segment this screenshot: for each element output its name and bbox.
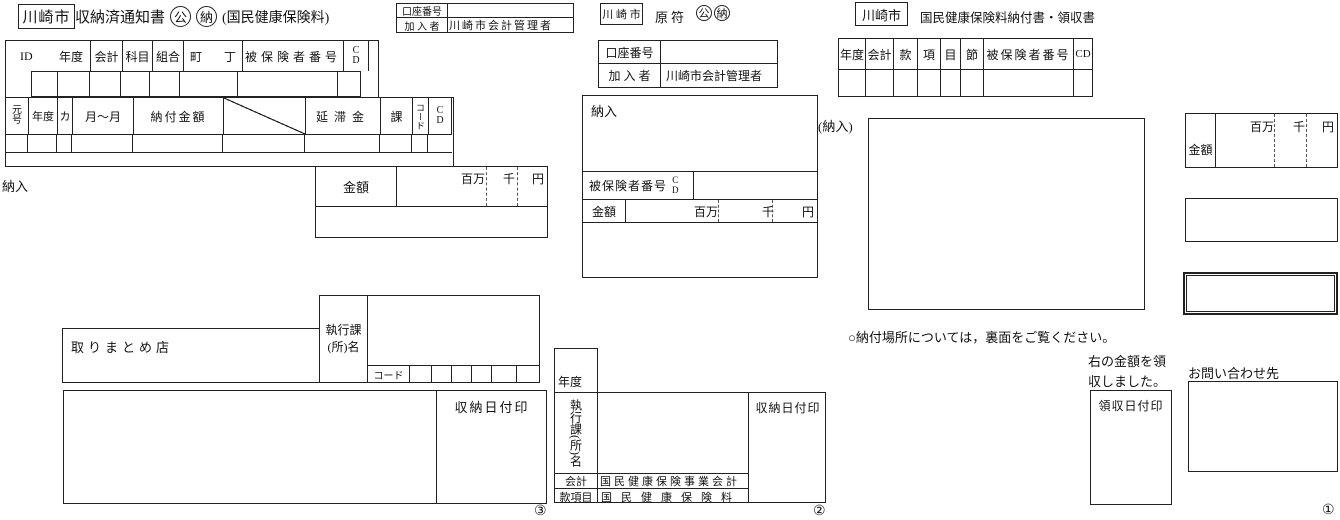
blank-cell — [120, 71, 150, 97]
form2-insured-cd: C D — [672, 176, 679, 195]
form1-part-number: ① — [1322, 502, 1335, 519]
form1-receipt-stamp-box: 領収日付印 — [1090, 390, 1172, 505]
form2-account-table: 口座番号 加 入 者 川崎市会計管理者 — [598, 40, 778, 88]
blank-cell — [472, 366, 492, 382]
blank-cell — [149, 71, 180, 97]
form1-unit-thousand: 千 — [1293, 118, 1305, 135]
blank-cell — [28, 135, 57, 152]
form1-received-note: 右の金額を領収しました。 — [1088, 352, 1172, 392]
form1-amount-label: 金額 — [1186, 114, 1216, 167]
form3-amount-box: 金額 百万 千 円 — [315, 166, 548, 238]
form2-insured-cell: 被保険者番号 C D — [583, 172, 694, 199]
blank-cell — [961, 70, 984, 96]
form2-nou-circle-mark: 納 — [714, 5, 730, 21]
form3-nounyuu-label: 納入 — [2, 176, 28, 195]
form2-kou-circle-mark: 公 — [696, 5, 712, 21]
form3-amount-label: 金額 — [316, 167, 397, 206]
form3-col-code: コード — [413, 98, 429, 134]
form2-main-box: 納入 被保険者番号 C D 金額 百万 千 円 — [582, 95, 818, 278]
form3-col-tsuki: 月〜月 — [73, 98, 134, 134]
form3-unit-million: 百万 — [461, 170, 485, 187]
form2-kankomoku-label: 款項目 — [555, 489, 597, 504]
form3-code-row: コード — [367, 365, 540, 383]
blank-cell — [492, 366, 517, 382]
form1-double-border-box — [1183, 272, 1338, 315]
form3-city-box: 川崎市 — [18, 4, 75, 29]
form3-subscriber-value: 川崎市会計管理者 — [448, 18, 573, 32]
blank-cell — [179, 71, 238, 97]
form2-nendo-label: 年度 — [558, 373, 582, 390]
form3-col-filler — [369, 41, 378, 71]
form2-amount-dash-2 — [772, 200, 773, 222]
form2-account-number-label: 口座番号 — [599, 41, 661, 63]
form3-col-filler2 — [452, 98, 453, 134]
form2-unit-yen: 円 — [802, 203, 814, 220]
form1-col-moku: 目 — [941, 39, 961, 69]
form1-amount-units: 百万 千 円 — [1216, 114, 1337, 167]
form2-account-number-value — [661, 41, 777, 63]
form1-city-box: 川崎市 — [855, 2, 908, 26]
form3-col-gengo: 元 号 — [6, 98, 29, 134]
form3-col-ka: カ — [58, 98, 73, 134]
form2-city-box: 川 崎 市 — [600, 3, 643, 25]
form3-torimatome-label: 取りまとめ店 — [63, 329, 319, 356]
blank-cell — [412, 135, 428, 152]
form3-col-chome: 丁 — [224, 48, 236, 65]
form3-col-cho: 町 — [190, 48, 202, 65]
form3-cd2-d: D — [436, 116, 443, 127]
form2-unit-million: 百万 — [694, 203, 718, 220]
form1-header-table: 年度 会計 款 項 目 節 被保険者番号 CD — [838, 38, 1093, 97]
form3-payment-table: 元 号 年度 カ 月〜月 納付金額 延滞金 課 コード C D — [5, 97, 454, 167]
form2-city: 川 崎 市 — [602, 6, 641, 22]
form3-subtitle: (国民健康保険料) — [222, 7, 329, 27]
form3-col-nendo2: 年度 — [29, 98, 58, 134]
blank-cell — [337, 71, 361, 97]
form3-part-number: ③ — [534, 503, 547, 520]
form3-col-entai: 延滞金 — [306, 98, 381, 134]
blank-cell — [72, 135, 133, 152]
blank-cell — [428, 135, 452, 152]
form2-shikkou-cell: 執行課(所)名 — [555, 393, 597, 473]
form3-account-number-value — [448, 4, 573, 17]
form1-receipt-stamp-label: 領収日付印 — [1091, 391, 1171, 414]
scanned-form-sheet: 川崎市 収納済通知書 公 納 (国民健康保険料) 口座番号 加 入 者 川崎市会… — [0, 0, 1340, 520]
blank-cell — [452, 366, 472, 382]
form3-col-kamoku: 科目 — [123, 41, 153, 71]
form1-col-hihokensha: 被保険者番号 — [984, 39, 1074, 69]
form1-title: 国民健康保険料納付書・領収書 — [920, 7, 1095, 26]
form3-stamp-box: 収納日付印 — [63, 390, 547, 504]
form2-nounyuu-label: 納入 — [591, 101, 617, 120]
blank-cell — [517, 366, 539, 382]
form1-city: 川崎市 — [862, 5, 901, 24]
form3-col-id: ID — [20, 49, 33, 64]
form3-unit-thousand: 千 — [503, 170, 515, 187]
form3-col-kacol: 課 — [381, 98, 413, 134]
form2-cd-d: D — [672, 186, 679, 195]
form3-cd-d: D — [352, 56, 359, 67]
form3-stamp-label: 収納日付印 — [437, 397, 547, 416]
form1-col-kaikei: 会計 — [866, 39, 894, 69]
form1-payment-place-note: ○納付場所については，裏面をご覧ください。 — [848, 327, 1115, 346]
blank-cell — [31, 71, 58, 97]
blank-cell — [866, 70, 894, 96]
form3-col-noufu: 納付金額 — [134, 98, 224, 134]
form1-amount-box: 金額 百万 千 円 — [1185, 113, 1338, 168]
blank-cell — [432, 366, 452, 382]
form2-subscriber-value: 川崎市会計管理者 — [661, 64, 777, 87]
form2-insured-value — [694, 172, 817, 199]
form1-inquiry-box — [1188, 381, 1338, 472]
blank-cell — [1074, 70, 1092, 96]
form2-subscriber-label: 加 入 者 — [599, 64, 661, 87]
form3-code-vertical: コード — [414, 103, 427, 130]
blank-cell — [237, 71, 338, 97]
form2-amount-row: 金額 百万 千 円 — [583, 200, 817, 223]
form3-col-id-nendo: ID 年度 — [6, 41, 91, 71]
form2-nendo-box: 年度 — [554, 348, 598, 393]
form3-unit-yen: 円 — [532, 170, 544, 187]
blank-cell — [410, 366, 432, 382]
form2-amount-units: 百万 千 円 — [626, 200, 817, 222]
blank-cell — [57, 135, 72, 152]
form3-account-number-label: 口座番号 — [397, 4, 448, 17]
blank-cell — [6, 135, 28, 152]
blank-cell — [380, 135, 412, 152]
form3-account-table: 口座番号 加 入 者 川崎市会計管理者 — [396, 3, 574, 33]
form2-shikkou-vertical: 執行課(所)名 — [568, 399, 585, 467]
blank-cell — [894, 70, 918, 96]
form1-unit-yen: 円 — [1322, 118, 1334, 135]
form1-header-blank-row — [839, 70, 1092, 96]
blank-cell — [839, 70, 866, 96]
form3-amount-units: 百万 千 円 — [397, 167, 547, 206]
form3-header: 収納済通知書 公 納 (国民健康保険料) — [75, 6, 329, 27]
blank-cell — [305, 135, 380, 152]
blank-cell — [57, 71, 90, 97]
blank-cell — [223, 135, 305, 152]
form3-gengo-bottom: 号 — [12, 116, 22, 127]
form3-payment-blank-row — [6, 134, 452, 153]
form3-diagonal-cell — [224, 98, 306, 134]
form1-amount-dash-1 — [1274, 114, 1275, 167]
form2-kaikei-value: 国民健康保険事業会計 — [598, 474, 747, 488]
form2-insured-row: 被保険者番号 C D — [583, 171, 817, 200]
blank-cell — [984, 70, 1074, 96]
form3-kou-circle-mark: 公 — [170, 6, 191, 27]
form1-col-cd: CD — [1074, 39, 1092, 69]
form1-nounyuu-box — [868, 118, 1145, 310]
form1-nounyuu-label: (納入) — [818, 116, 853, 135]
form3-shikkou-value-cell — [367, 295, 540, 366]
form3-id-table: ID 年度 会計 科目 組合 町 丁 被保険者番号 C D — [5, 40, 379, 98]
form3-col-cd: C D — [344, 41, 369, 71]
form3-shikkou-line1: 執行課 — [325, 322, 361, 339]
form3-col-nendo: 年度 — [59, 48, 83, 65]
form2-title: 原符 — [655, 7, 687, 26]
form2-amount-dash-1 — [718, 200, 719, 222]
form1-col-ko: 項 — [918, 39, 941, 69]
form3-col-chochome: 町 丁 — [184, 41, 243, 71]
blank-cell — [941, 70, 961, 96]
form2-stamp-label: 収納日付印 — [749, 399, 827, 416]
form3-amount-blank-row — [316, 206, 547, 237]
form3-col-cd2: C D — [429, 98, 452, 134]
blank-cell — [89, 71, 121, 97]
form2-bottom-table: 執行課(所)名 会計 国民健康保険事業会計 款項目 国民健康保険料 収納日付印 — [554, 392, 826, 503]
form1-double-border-inner — [1186, 275, 1335, 312]
form1-plain-box — [1185, 198, 1338, 242]
form3-shikkou-line2: (所)名 — [328, 339, 360, 356]
form1-col-setsu: 節 — [961, 39, 984, 69]
form3-title: 収納済通知書 — [75, 6, 165, 27]
form3-nou-circle-mark: 納 — [196, 6, 217, 27]
form1-inquiry-label: お問い合わせ先 — [1188, 363, 1279, 382]
form3-code-label: コード — [368, 366, 410, 382]
form2-kankomoku-value: 国民健康保険料 — [598, 489, 747, 504]
form3-amount-dash-1 — [486, 167, 487, 206]
form3-torimatome-box: 取りまとめ店 — [62, 328, 320, 383]
blank-cell — [918, 70, 941, 96]
form3-amount-dash-2 — [517, 167, 518, 206]
form3-id-table-blank-row — [31, 71, 361, 97]
form3-shikkou-box: 執行課 (所)名 — [319, 295, 368, 383]
form2-insured-label: 被保険者番号 — [589, 177, 667, 194]
form3-col-kumiai: 組合 — [153, 41, 184, 71]
form3-city: 川崎市 — [22, 6, 70, 27]
form2-kaikei-label: 会計 — [555, 474, 597, 488]
form3-subscriber-label: 加 入 者 — [397, 18, 448, 32]
form3-col-hihokensha: 被保険者番号 — [243, 41, 344, 71]
form2-amount-label: 金額 — [583, 200, 626, 222]
form3-col-kaikei: 会計 — [91, 41, 123, 71]
form1-amount-dash-2 — [1306, 114, 1307, 167]
blank-cell — [133, 135, 223, 152]
form2-part-number: ② — [813, 503, 826, 520]
form1-col-nendo: 年度 — [839, 39, 866, 69]
form1-col-kan: 款 — [894, 39, 918, 69]
form1-unit-million: 百万 — [1250, 118, 1274, 135]
